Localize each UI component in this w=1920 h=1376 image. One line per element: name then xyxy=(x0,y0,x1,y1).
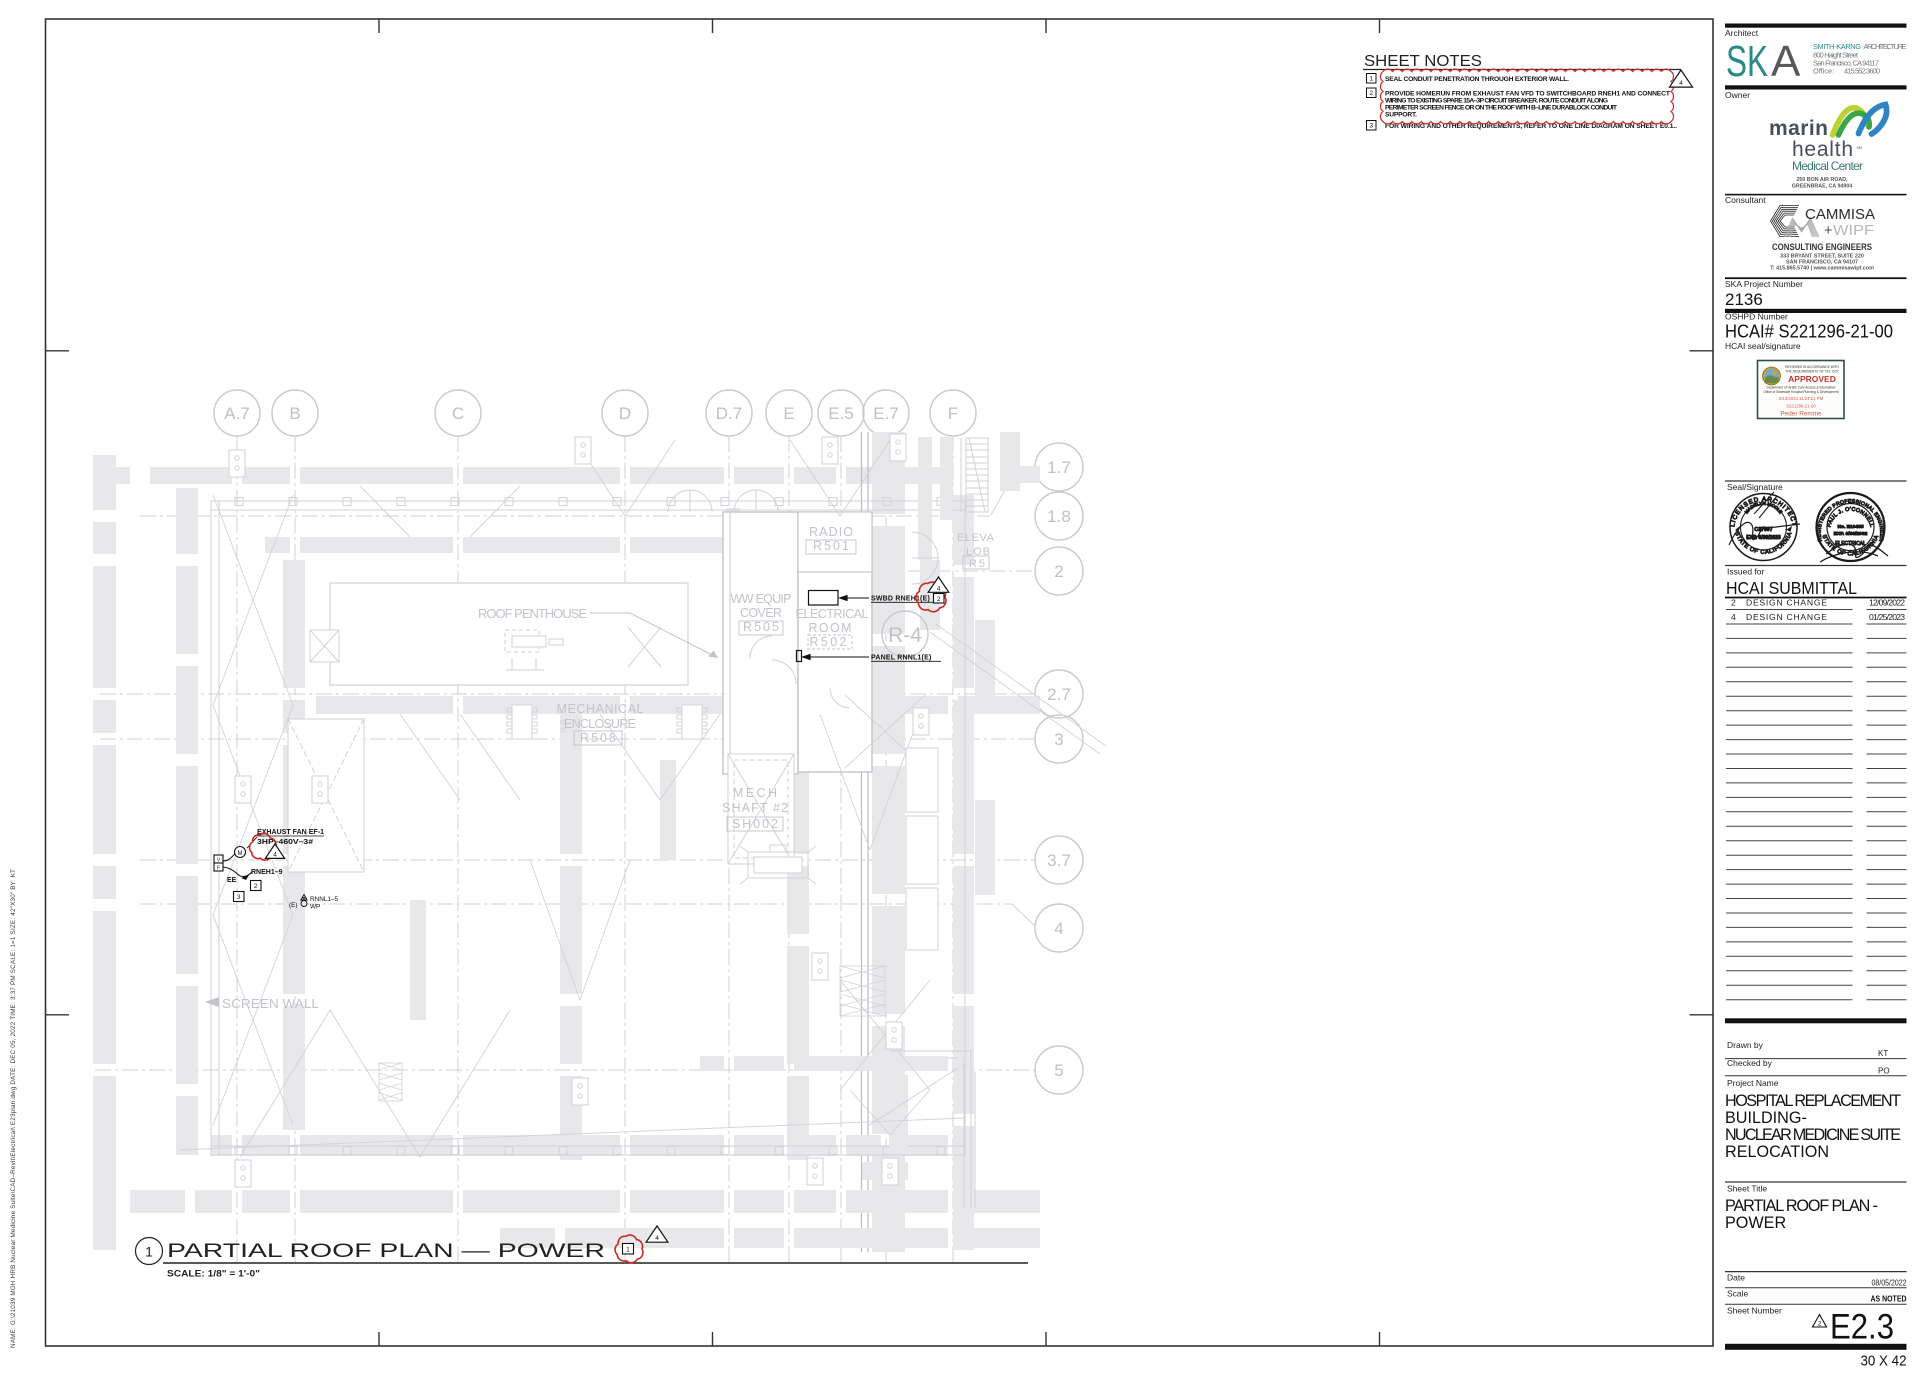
svg-text:F: F xyxy=(217,866,220,872)
svg-text:THE REQUIREMENTS OF T24, CCR: THE REQUIREMENTS OF T24, CCR xyxy=(1785,370,1839,374)
svg-text:1.7: 1.7 xyxy=(1047,458,1071,477)
svg-text:12/09/2022: 12/09/2022 xyxy=(1869,598,1905,608)
svg-text:ELECTRICAL: ELECTRICAL xyxy=(796,607,869,621)
svg-text:R505: R505 xyxy=(743,620,779,634)
svg-text:RADIO: RADIO xyxy=(809,525,853,539)
svg-text:2: 2 xyxy=(1054,562,1063,581)
svg-text:No. E10435: No. E10435 xyxy=(1837,524,1863,530)
svg-text:3: 3 xyxy=(1369,123,1373,130)
svg-text:4: 4 xyxy=(1731,612,1736,622)
svg-text:2: 2 xyxy=(1731,598,1736,608)
svg-text:COVER: COVER xyxy=(740,606,782,620)
svg-text:EXP. 6/30/2023: EXP. 6/30/2023 xyxy=(1746,535,1781,541)
svg-text:WP: WP xyxy=(310,904,320,911)
svg-text:A: A xyxy=(1771,37,1801,86)
svg-text:REVIEWED IN ACCORDANCE WITH: REVIEWED IN ACCORDANCE WITH xyxy=(1785,365,1839,369)
svg-text:R508: R508 xyxy=(580,731,616,745)
svg-text:BUILDING-: BUILDING- xyxy=(1725,1109,1807,1127)
svg-text:2: 2 xyxy=(937,596,941,603)
svg-text:SEAL CONDUIT PENETRATION THROU: SEAL CONDUIT PENETRATION THROUGH EXTERIO… xyxy=(1385,76,1569,83)
svg-text:Department of Health Care Acce: Department of Health Care Access & Infor… xyxy=(1767,386,1836,390)
svg-text:marin: marin xyxy=(1769,117,1828,140)
svg-text:CONSULTING ENGINEERS: CONSULTING ENGINEERS xyxy=(1772,242,1872,252)
svg-text:EE: EE xyxy=(227,877,237,884)
svg-text:30 X 42: 30 X 42 xyxy=(1861,1353,1907,1370)
svg-text:WW EQUIP: WW EQUIP xyxy=(731,592,792,606)
svg-text:T: 415.865.5740 | www.cammis: T: 415.865.5740 | www.cammisawipf.com xyxy=(1770,266,1874,272)
svg-text:Medical Center: Medical Center xyxy=(1792,159,1863,173)
svg-text:2.7: 2.7 xyxy=(1047,685,1071,704)
svg-text:ENCLOSURE: ENCLOSURE xyxy=(564,717,636,731)
svg-text:WIPF: WIPF xyxy=(1833,223,1874,239)
svg-text:SK: SK xyxy=(1726,37,1768,86)
svg-text:250 BON AIR ROAD,: 250 BON AIR ROAD, xyxy=(1796,177,1848,183)
svg-text:SKA Project Number: SKA Project Number xyxy=(1725,279,1803,289)
svg-text:2136: 2136 xyxy=(1725,290,1763,309)
svg-text:SCREEN WALL: SCREEN WALL xyxy=(222,996,319,1011)
svg-text:2/13/2023 11:24:21 PM: 2/13/2023 11:24:21 PM xyxy=(1779,396,1824,401)
svg-text:Consultant: Consultant xyxy=(1725,195,1766,205)
svg-text:Checked by: Checked by xyxy=(1727,1058,1773,1068)
svg-text:OSHPD Number: OSHPD Number xyxy=(1725,312,1788,322)
svg-text:E: E xyxy=(783,404,794,423)
svg-text:Peder Remme: Peder Remme xyxy=(1780,411,1822,418)
svg-text:SM: SM xyxy=(1857,146,1862,150)
svg-text:SUPPORT.: SUPPORT. xyxy=(1385,112,1417,119)
svg-text:CAMMISA: CAMMISA xyxy=(1805,207,1875,223)
svg-text:DESIGN CHANGE: DESIGN CHANGE xyxy=(1746,598,1827,608)
svg-text:KT: KT xyxy=(1878,1049,1888,1058)
svg-text:M: M xyxy=(238,851,243,857)
svg-text:HCAI# S221296-21-00: HCAI# S221296-21-00 xyxy=(1725,322,1893,342)
svg-text:4: 4 xyxy=(1679,80,1683,87)
svg-text:NAME: G:\21039 MGH HRB Nuclea: NAME: G:\21039 MGH HRB Nuclear Medicine … xyxy=(10,869,17,1348)
svg-text:08/05/2022: 08/05/2022 xyxy=(1872,1279,1907,1288)
svg-text:415.552.3600: 415.552.3600 xyxy=(1844,67,1880,76)
svg-text:ELEVA: ELEVA xyxy=(957,532,995,544)
svg-text:DESIGN CHANGE: DESIGN CHANGE xyxy=(1746,612,1827,622)
svg-text:PARTIAL ROOF PLAN -: PARTIAL ROOF PLAN - xyxy=(1725,1197,1878,1215)
svg-text:PARTIAL ROOF PLAN — POWER: PARTIAL ROOF PLAN — POWER xyxy=(167,1241,605,1262)
svg-text:A.7: A.7 xyxy=(224,404,250,423)
svg-text:E.5: E.5 xyxy=(828,404,854,423)
svg-text:(E): (E) xyxy=(289,902,298,909)
svg-text:2: 2 xyxy=(1818,1321,1822,1328)
svg-text:F: F xyxy=(948,404,958,423)
svg-text:NUCLEAR MEDICINE SUITE: NUCLEAR MEDICINE SUITE xyxy=(1725,1126,1901,1144)
svg-text:PERIMETER SCREEN FENCE OR ON T: PERIMETER SCREEN FENCE OR ON THE ROOF WI… xyxy=(1385,105,1618,112)
svg-text:HCAI SUBMITTAL: HCAI SUBMITTAL xyxy=(1726,578,1857,598)
svg-text:POWER: POWER xyxy=(1725,1214,1786,1232)
svg-text:2: 2 xyxy=(1369,90,1373,97)
svg-text:ROOF PENTHOUSE: ROOF PENTHOUSE xyxy=(478,606,587,621)
svg-text:+: + xyxy=(1824,223,1832,239)
svg-text:Date: Date xyxy=(1727,1273,1745,1283)
svg-text:Drawn by: Drawn by xyxy=(1727,1040,1764,1050)
svg-text:4: 4 xyxy=(655,1235,659,1242)
svg-text:GREENBRAE, CA 94904: GREENBRAE, CA 94904 xyxy=(1792,184,1852,190)
svg-text:Sheet Number: Sheet Number xyxy=(1727,1306,1782,1316)
svg-text:RELOCATION: RELOCATION xyxy=(1725,1143,1829,1161)
svg-text:SHEET NOTES: SHEET NOTES xyxy=(1364,53,1482,70)
svg-text:AS NOTED: AS NOTED xyxy=(1871,1294,1907,1304)
svg-text:WIRING TO EXISTING SPARE 15A–3: WIRING TO EXISTING SPARE 15A–3P CIRCUIT … xyxy=(1385,98,1608,105)
svg-text:HOSPITAL REPLACEMENT: HOSPITAL REPLACEMENT xyxy=(1725,1092,1901,1110)
svg-text:Owner: Owner xyxy=(1725,90,1750,100)
svg-text:1: 1 xyxy=(145,1244,153,1260)
svg-text:4: 4 xyxy=(1054,919,1063,938)
svg-text:EXP. 6/30/2062: EXP. 6/30/2062 xyxy=(1834,531,1868,537)
svg-text:3: 3 xyxy=(1054,730,1063,749)
svg-text:S221296-21-00: S221296-21-00 xyxy=(1786,404,1816,409)
svg-text:ROOM: ROOM xyxy=(809,621,852,635)
svg-text:HCAI seal/signature: HCAI seal/signature xyxy=(1725,341,1801,351)
svg-text:1: 1 xyxy=(1369,76,1373,83)
svg-text:1: 1 xyxy=(626,1247,630,1254)
svg-text:D: D xyxy=(619,404,631,423)
svg-text:PO: PO xyxy=(1878,1067,1890,1076)
svg-text:4: 4 xyxy=(273,851,277,858)
svg-text:Project Name: Project Name xyxy=(1727,1078,1779,1088)
svg-text:Issued for: Issued for xyxy=(1727,567,1764,577)
svg-text:SH002: SH002 xyxy=(732,817,778,831)
svg-text:3: 3 xyxy=(237,894,241,901)
svg-text:SWBD RNEH1(E): SWBD RNEH1(E) xyxy=(871,596,930,603)
svg-text:SCALE: 1/8" = 1'-0": SCALE: 1/8" = 1'-0" xyxy=(167,1269,260,1280)
svg-text:Sheet Title: Sheet Title xyxy=(1727,1184,1767,1194)
svg-text:ARCHITECTURE: ARCHITECTURE xyxy=(1864,42,1907,51)
svg-text:E2.3: E2.3 xyxy=(1830,1307,1894,1347)
svg-text:4: 4 xyxy=(937,585,941,592)
svg-text:3HP–460V–3#: 3HP–460V–3# xyxy=(257,839,313,846)
svg-text:Scale: Scale xyxy=(1727,1289,1749,1299)
svg-text:health: health xyxy=(1792,138,1853,161)
svg-text:5: 5 xyxy=(1054,1061,1063,1080)
svg-text:E.7: E.7 xyxy=(873,404,899,423)
svg-text:1.8: 1.8 xyxy=(1047,507,1071,526)
svg-text:APPROVED: APPROVED xyxy=(1788,374,1836,384)
svg-text:PANEL RNNL1(E): PANEL RNNL1(E) xyxy=(871,655,932,662)
svg-text:Office:: Office: xyxy=(1813,67,1834,76)
svg-text:C: C xyxy=(452,404,464,423)
svg-text:R-4: R-4 xyxy=(888,624,922,647)
svg-text:3.7: 3.7 xyxy=(1047,851,1071,870)
svg-text:R501: R501 xyxy=(813,539,849,553)
svg-text:01/25/2023: 01/25/2023 xyxy=(1869,612,1905,622)
svg-text:PROVIDE HOMERUN FROM EXHAUST F: PROVIDE HOMERUN FROM EXHAUST FAN VFD TO … xyxy=(1385,91,1671,98)
svg-text:Seal/Signature: Seal/Signature xyxy=(1727,482,1783,492)
svg-text:SHAFT #2: SHAFT #2 xyxy=(722,801,788,815)
svg-text:RNEH1–9: RNEH1–9 xyxy=(251,869,283,876)
svg-text:B: B xyxy=(289,404,300,423)
svg-text:MECHANICAL: MECHANICAL xyxy=(557,702,644,716)
svg-text:Office of Statewide Hospital P: Office of Statewide Hospital Planning & … xyxy=(1763,390,1838,394)
svg-text:RNNL1–5: RNNL1–5 xyxy=(310,896,339,903)
svg-text:D.7: D.7 xyxy=(716,404,742,423)
svg-text:2: 2 xyxy=(254,883,258,890)
